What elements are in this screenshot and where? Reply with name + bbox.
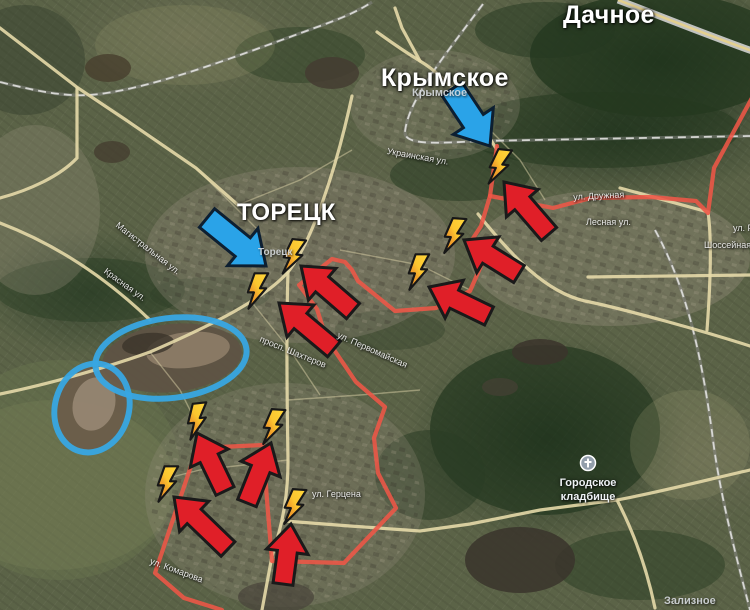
slag-heap — [465, 527, 575, 593]
map-canvas: ДачноеКрымскоеТОРЕЦККрымскоеТорецкЗализн… — [0, 0, 750, 610]
slag-heap — [305, 57, 359, 89]
clash-lightning-icon — [444, 218, 467, 255]
terrain-patch — [475, 2, 615, 58]
road — [588, 275, 750, 277]
slag-heap — [94, 141, 130, 163]
terrain-patch — [555, 530, 725, 600]
slag-heap — [512, 339, 568, 365]
slag-heap — [482, 378, 518, 396]
cemetery-poi-icon — [581, 456, 596, 471]
map-overlay-svg — [0, 0, 750, 610]
slag-heap — [85, 54, 131, 82]
